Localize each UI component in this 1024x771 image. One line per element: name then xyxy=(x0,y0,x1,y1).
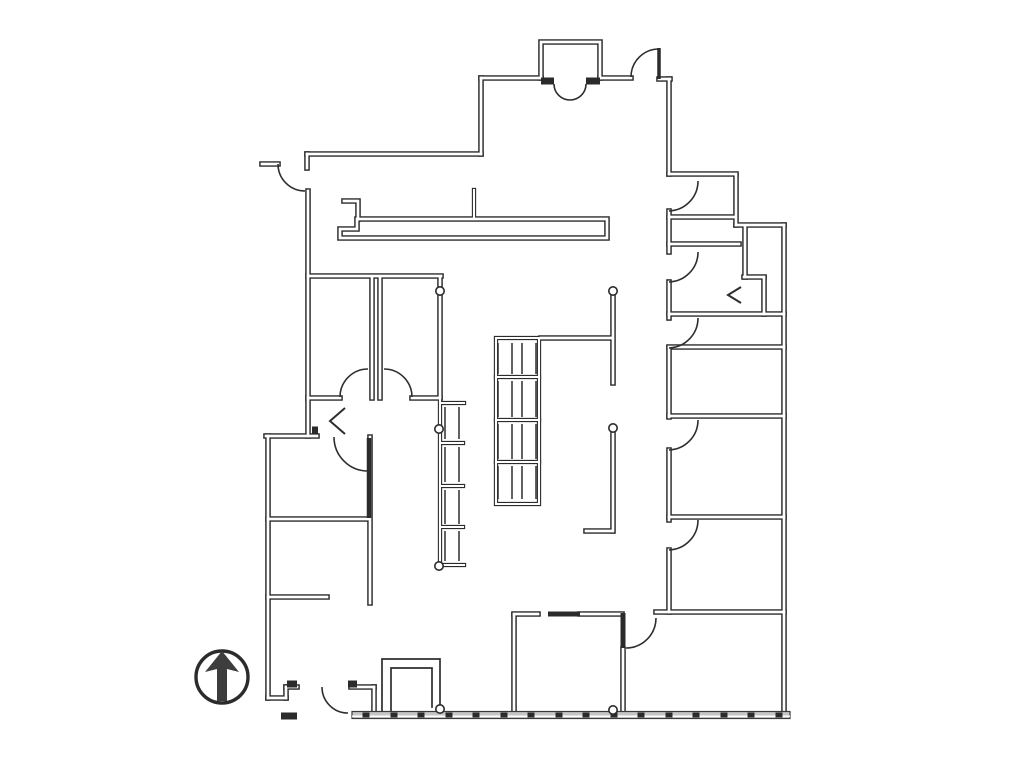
storefront-mullion-tick xyxy=(721,713,728,718)
round-post xyxy=(436,705,444,713)
floor-plan-drawing xyxy=(0,0,1024,771)
round-post xyxy=(435,562,443,570)
storefront-glazing-layer xyxy=(352,712,790,719)
storefront-mullion-tick xyxy=(583,713,590,718)
storefront-mullion-tick xyxy=(501,713,508,718)
round-post xyxy=(436,287,444,295)
storefront-mullion-tick xyxy=(556,713,563,718)
round-post xyxy=(609,706,617,714)
round-post xyxy=(609,424,617,432)
storefront-mullion-tick xyxy=(693,713,700,718)
storefront-mullion-tick xyxy=(446,713,453,718)
storefront-mullion-tick xyxy=(391,713,398,718)
storefront-mullion-tick xyxy=(776,713,783,718)
storefront-mullion-tick xyxy=(473,713,480,718)
storefront-mullion-tick xyxy=(363,713,370,718)
storefront-mullion-tick xyxy=(418,713,425,718)
floor-plan-page xyxy=(0,0,1024,771)
round-post xyxy=(435,425,443,433)
storefront-mullion-tick xyxy=(638,713,645,718)
round-post xyxy=(609,287,617,295)
storefront-mullion-tick xyxy=(748,713,755,718)
storefront-mullion-tick xyxy=(666,713,673,718)
storefront-mullion-tick xyxy=(528,713,535,718)
